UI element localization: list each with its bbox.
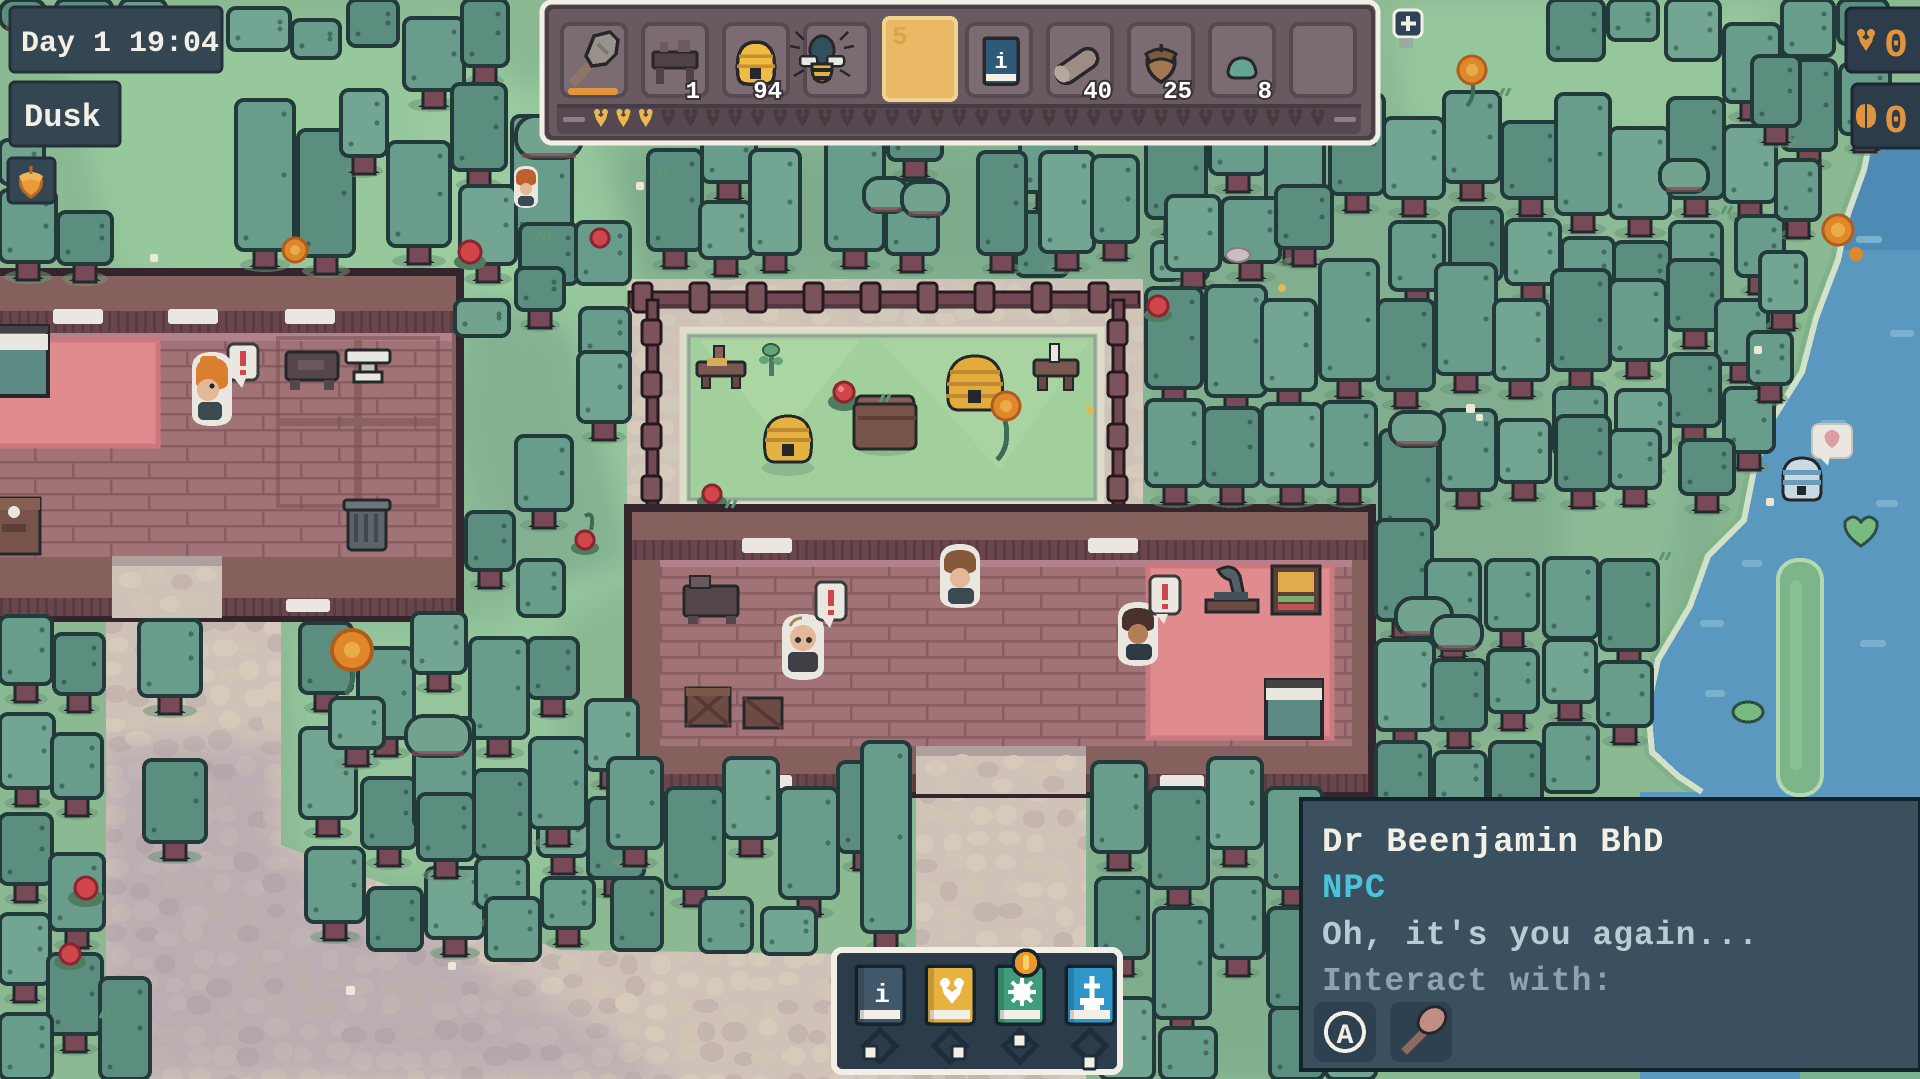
svg-text:0: 0 [1884,100,1908,145]
svg-text:0: 0 [1884,24,1908,69]
svg-text:5: 5 [892,22,908,52]
svg-text:Oh, it's you again...: Oh, it's you again... [1322,917,1759,954]
svg-text:i: i [994,50,1007,75]
svg-text:NPC: NPC [1322,870,1386,908]
svg-text:94: 94 [753,79,782,106]
svg-text:1: 1 [686,79,700,106]
svg-text:40: 40 [1083,79,1112,106]
svg-text:Dr Beenjamin BhD: Dr Beenjamin BhD [1322,824,1664,862]
svg-text:25: 25 [1163,79,1192,106]
svg-text:Day 1 19:04: Day 1 19:04 [21,27,219,61]
svg-text:Interact with:: Interact with: [1322,963,1613,1000]
svg-text:8: 8 [1258,79,1272,106]
svg-text:A: A [1337,1021,1354,1052]
svg-text:Dusk: Dusk [24,99,101,136]
svg-text:i: i [874,980,890,1010]
